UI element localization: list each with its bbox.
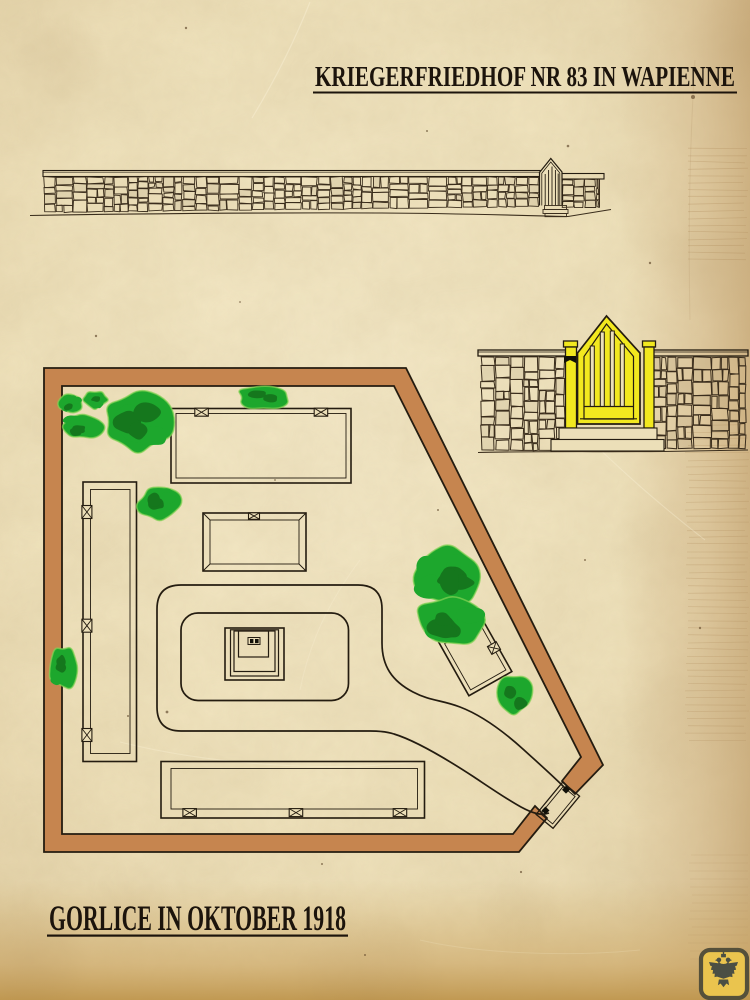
svg-text:GORLICE IN OKTOBER 1918: GORLICE IN OKTOBER 1918 <box>49 898 346 938</box>
svg-text:KRIEGERFRIEDHOF NR 83 IN WAPIE: KRIEGERFRIEDHOF NR 83 IN WAPIENNE <box>315 62 735 93</box>
